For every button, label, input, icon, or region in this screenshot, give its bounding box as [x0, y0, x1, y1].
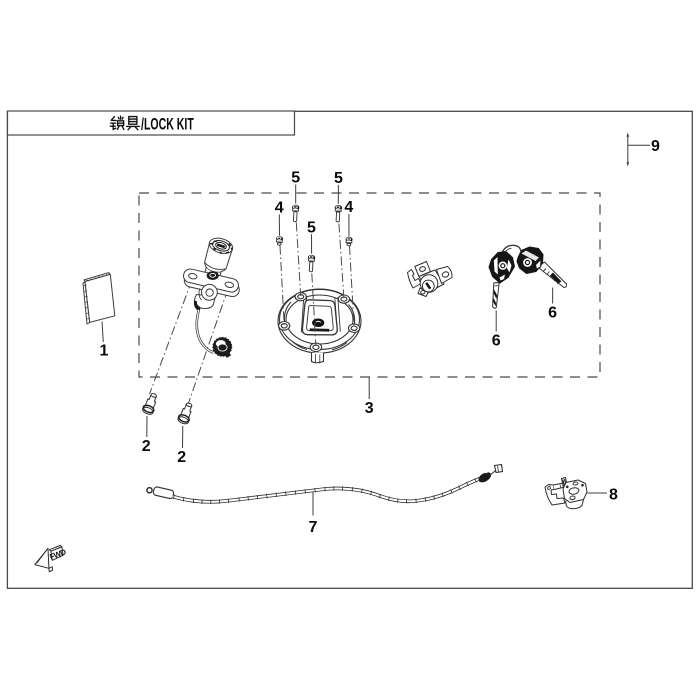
svg-text:9: 9	[651, 138, 660, 155]
svg-text:3: 3	[365, 400, 374, 417]
svg-text:5: 5	[307, 219, 316, 236]
svg-text:4: 4	[275, 199, 284, 216]
svg-text:2: 2	[142, 438, 151, 455]
svg-text:2: 2	[177, 449, 186, 466]
svg-text:8: 8	[609, 487, 618, 504]
svg-text:6: 6	[548, 305, 557, 322]
svg-text:6: 6	[492, 333, 501, 350]
svg-text:/LOCK KIT: /LOCK KIT	[141, 114, 194, 133]
svg-text:1: 1	[100, 343, 109, 360]
svg-text:7: 7	[309, 519, 318, 536]
svg-text:5: 5	[291, 170, 300, 187]
svg-text:5: 5	[334, 170, 343, 187]
svg-text:4: 4	[344, 199, 353, 216]
